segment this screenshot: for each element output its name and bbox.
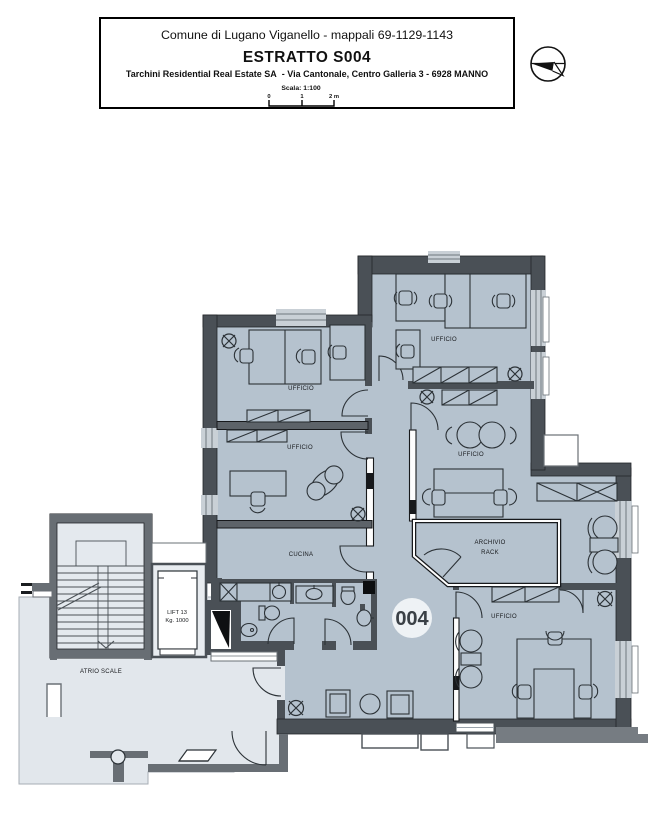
svg-text:LIFT 13: LIFT 13 (167, 610, 187, 616)
svg-text:UFFICIO: UFFICIO (287, 445, 313, 451)
svg-text:004: 004 (395, 608, 429, 630)
svg-text:ARCHIVIO: ARCHIVIO (474, 540, 505, 546)
svg-text:CUCINA: CUCINA (289, 552, 314, 558)
svg-text:2 m: 2 m (329, 94, 339, 100)
svg-text:Scala: 1:100: Scala: 1:100 (281, 85, 321, 92)
svg-text:UFFICIO: UFFICIO (431, 337, 457, 343)
svg-text:UFFICIO: UFFICIO (458, 452, 484, 458)
svg-text:Kg. 1000: Kg. 1000 (165, 618, 188, 624)
svg-text:Tarchini Residential Real Esta: Tarchini Residential Real Estate SA - Vi… (126, 69, 488, 79)
svg-text:ATRIO SCALE: ATRIO SCALE (80, 669, 122, 675)
svg-text:ESTRATTO S004: ESTRATTO S004 (243, 49, 371, 66)
svg-text:UFFICIO: UFFICIO (491, 614, 517, 620)
svg-text:UFFICIO: UFFICIO (288, 386, 314, 392)
svg-text:0: 0 (267, 94, 270, 100)
svg-text:RACK: RACK (481, 550, 499, 556)
svg-text:Comune di Lugano Viganello - m: Comune di Lugano Viganello - mappali 69-… (161, 28, 453, 42)
